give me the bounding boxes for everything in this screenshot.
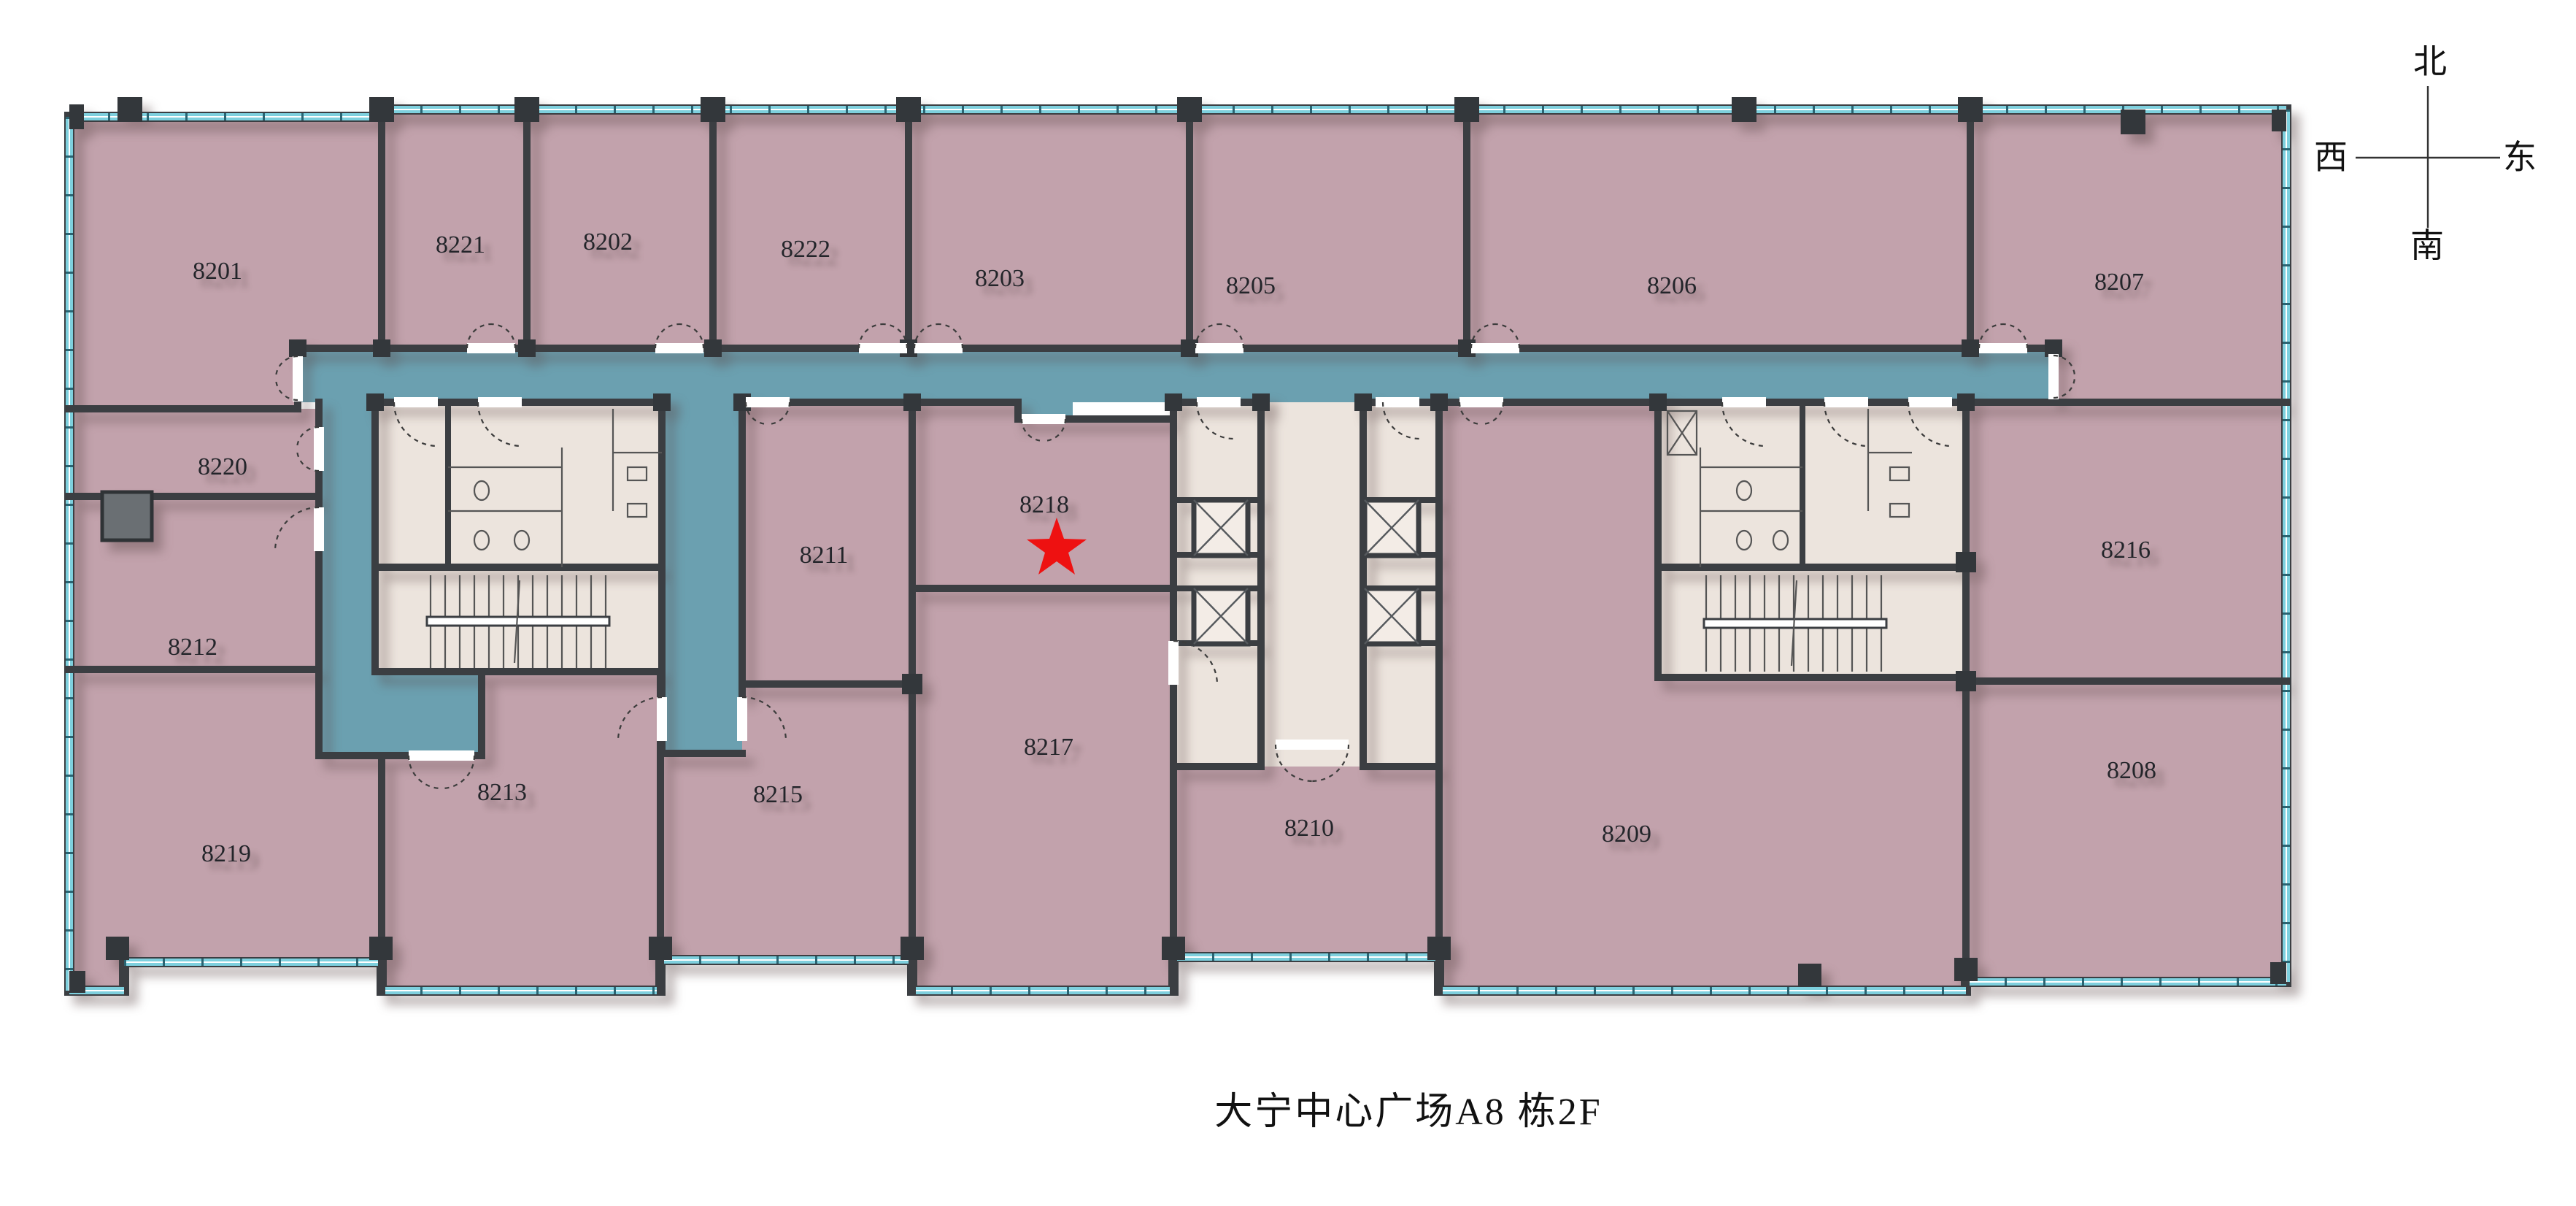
compass-rose: 北 南 西 东 [2314, 43, 2537, 264]
room-label-8205: 8205 [1226, 272, 1276, 299]
room-label-8210: 8210 [1284, 815, 1334, 842]
compass-west-label: 西 [2314, 139, 2348, 176]
east-of-west-core-corridor [662, 402, 742, 753]
room-8217 [912, 588, 1173, 991]
room-label-8211: 8211 [800, 542, 849, 569]
service-shaft [102, 492, 152, 540]
room-8208 [1966, 681, 2286, 982]
room-label-8212: 8212 [168, 634, 217, 661]
compass-south-label: 南 [2410, 227, 2444, 264]
room-label-8203: 8203 [975, 265, 1025, 292]
room-label-8206: 8206 [1647, 272, 1697, 299]
west-core-lobby [319, 672, 482, 756]
room-label-8220: 8220 [198, 453, 247, 480]
room-label-8222: 8222 [781, 236, 830, 263]
room-8203 [909, 110, 1189, 348]
east-core [1658, 402, 1966, 677]
room-label-8219: 8219 [201, 840, 251, 867]
floorplan-canvas: 8201 8221 8202 8222 8203 8205 8206 8207 … [0, 0, 2576, 1206]
room-8221 [382, 110, 527, 348]
room-8206 [1467, 110, 1970, 348]
room-label-8208: 8208 [2107, 757, 2156, 784]
room-label-8217: 8217 [1024, 734, 1073, 761]
floorplan-svg: 8201 8221 8202 8222 8203 8205 8206 8207 … [0, 0, 2576, 1206]
room-label-8201: 8201 [193, 258, 242, 285]
compass-north-label: 北 [2413, 43, 2447, 80]
room-8210 [1173, 745, 1439, 957]
room-label-8202: 8202 [583, 228, 633, 256]
room-label-8213: 8213 [477, 779, 527, 806]
room-label-8209: 8209 [1602, 821, 1651, 848]
room-label-8221: 8221 [436, 231, 485, 258]
room-8205 [1189, 110, 1467, 348]
room-label-8207: 8207 [2094, 269, 2144, 296]
room-label-8216: 8216 [2101, 537, 2151, 564]
room-8220 [69, 409, 319, 496]
middle-elevator-core [1173, 402, 1439, 767]
room-label-8218: 8218 [1019, 491, 1069, 518]
compass-east-label: 东 [2503, 139, 2537, 176]
room-label-8215: 8215 [753, 781, 803, 808]
page-title: 大宁中心广场A8 栋2F [1214, 1091, 1602, 1133]
room-8222 [713, 110, 909, 348]
